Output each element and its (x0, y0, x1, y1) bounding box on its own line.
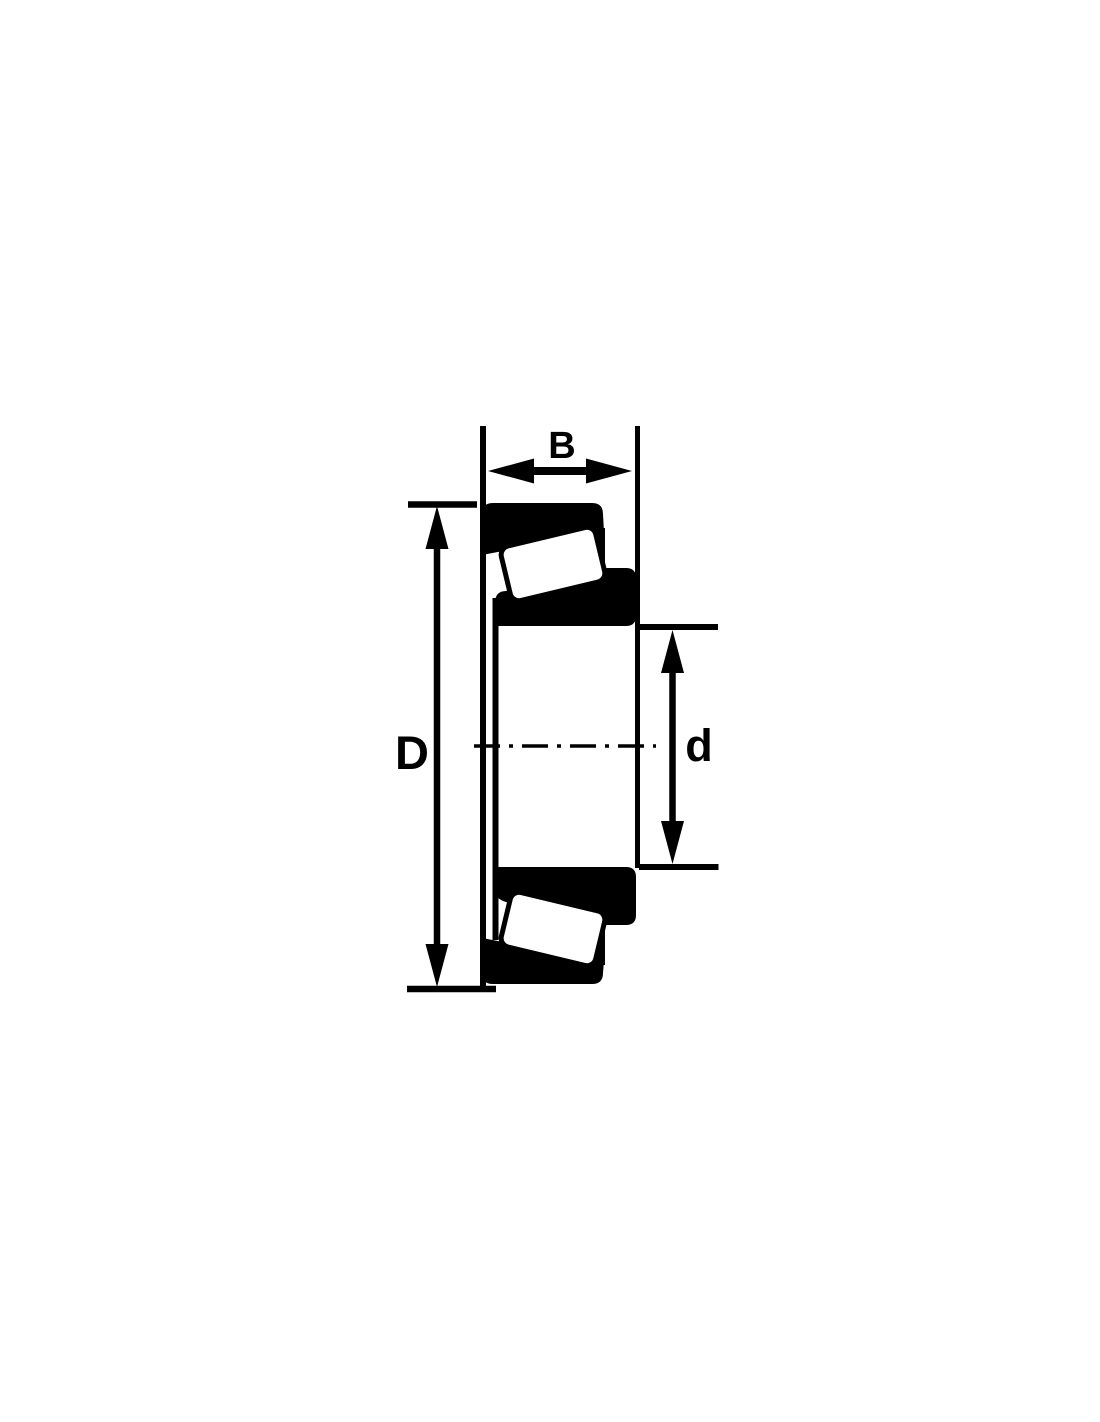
width-arrowhead-left (488, 459, 534, 484)
drawing-svg: B D d (0, 0, 1100, 1422)
bore-diameter-arrowhead-down (661, 821, 684, 864)
width-dimension-label: B (548, 425, 575, 467)
width-arrowhead-right (586, 459, 632, 484)
bore-diameter-arrowhead-up (661, 630, 684, 673)
outer-diameter-arrowhead-up (426, 506, 449, 549)
outer-diameter-label: D (395, 726, 429, 779)
bore-diameter-label: d (685, 720, 713, 771)
bearing-dimension-drawing: B D d (0, 0, 1100, 1422)
outer-diameter-arrowhead-down (426, 944, 449, 987)
